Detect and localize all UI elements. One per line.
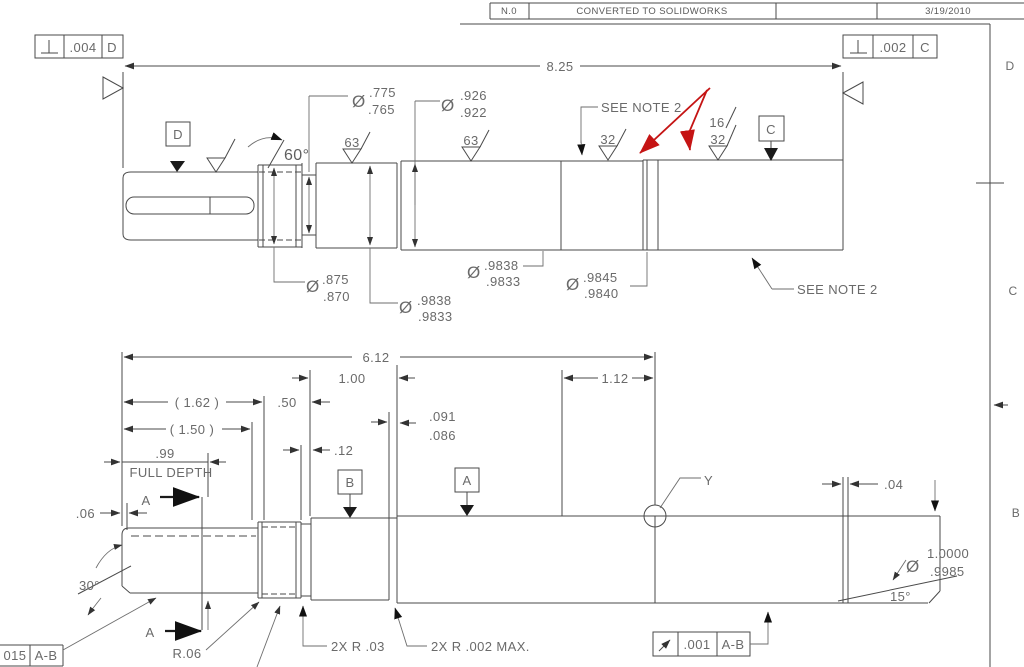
finish-32b-icon: 32 [709, 125, 736, 160]
zone-letter-c: C [1008, 284, 1017, 298]
section-line-a-a: A A [141, 493, 208, 640]
groove-lower-value: .086 [429, 428, 456, 443]
callout-dia-main: Ø 1.0000 .9985 [893, 546, 969, 580]
dim-50-value: .50 [277, 395, 296, 410]
groove-upper-value: .091 [429, 409, 456, 424]
top-view-shaft [123, 160, 843, 250]
revision-number: N.0 [501, 6, 517, 17]
callout-dia-9838-left: Ø .9838 .9833 [370, 166, 453, 324]
fcf-tolerance: .004 [70, 40, 97, 55]
datum-target-triangle-left [103, 77, 123, 99]
runout-datum: A-B [722, 637, 745, 652]
fcf-bl-datum: A-B [35, 648, 58, 663]
diameter-symbol: Ø [352, 92, 366, 111]
dim-162-value: ( 1.62 ) [175, 395, 219, 410]
dia-9838l-upper: .9838 [417, 293, 452, 308]
dia-775-upper: .775 [369, 85, 396, 100]
datum-target-triangle-right [843, 82, 863, 104]
datum-b-label: B [345, 475, 354, 490]
datum-a-label: A [462, 473, 471, 488]
engineering-drawing: N.0 CONVERTED TO SOLIDWORKS 3/19/2010 D … [0, 0, 1024, 667]
dim-99-value: .99 [155, 446, 174, 461]
fcf-perpendicularity-c: .002 C [843, 35, 937, 104]
circular-runout-icon [659, 640, 670, 651]
finish-16-icon: 16 [709, 107, 736, 130]
bottom-view-shaft [122, 516, 940, 603]
datum-triangle-icon [764, 148, 778, 161]
dia-main-lower: .9985 [930, 564, 965, 579]
dim-06-value: .06 [76, 506, 95, 521]
dia-9845-lower: .9840 [584, 286, 619, 301]
drawing-canvas: N.0 CONVERTED TO SOLIDWORKS 3/19/2010 D … [0, 0, 1024, 667]
fcf-bl-tolerance: 015 [4, 648, 27, 663]
datum-flag-d: D [166, 122, 190, 172]
dia-775-lower: .765 [368, 102, 395, 117]
radius-value: R.06 [172, 646, 201, 661]
y-target-callout: Y [644, 473, 713, 527]
datum-triangle-icon [460, 505, 474, 516]
finish-63b-value: 63 [463, 133, 478, 148]
dia-875-lower: .870 [323, 289, 350, 304]
diameter-symbol: Ø [906, 557, 920, 576]
fcf-datum: D [107, 40, 117, 55]
finish-32a-value: 32 [600, 132, 615, 147]
callout-dia-9838-right: Ø .9838 .9833 [467, 251, 543, 289]
dia-875-upper: .875 [322, 272, 349, 287]
dim-50: .50 [277, 395, 330, 410]
keyway-slot [126, 197, 254, 214]
thread-angle-value: 60° [284, 147, 309, 164]
dim-112: 1.12 [562, 370, 653, 516]
dim-100-value: 1.00 [339, 371, 366, 386]
chamfer-30-callout: 30° [78, 545, 131, 615]
dia-main-upper: 1.0000 [927, 546, 969, 561]
datum-d-label: D [173, 127, 183, 142]
angle-15-value: 15° [890, 589, 911, 604]
diameter-symbol: Ø [441, 96, 455, 115]
fcf-tolerance: .002 [880, 40, 907, 55]
fcf-bottom-left: 015 A-B [0, 598, 156, 666]
finish-16-value: 16 [709, 115, 724, 130]
dia-9845-upper: .9845 [583, 270, 618, 285]
dim-groove-091: .091 .086 [371, 365, 456, 518]
note-r03-text: 2X R .03 [331, 639, 385, 654]
dia-926-lower: .922 [460, 105, 487, 120]
full-depth-label: FULL DEPTH [130, 465, 213, 480]
datum-triangle-icon [170, 161, 185, 172]
see-note-2-upper-text: SEE NOTE 2 [601, 100, 682, 115]
diameter-symbol: Ø [399, 298, 413, 317]
finish-63a-value: 63 [344, 135, 359, 150]
datum-flag-b: B [338, 470, 362, 518]
revision-description: CONVERTED TO SOLIDWORKS [576, 6, 727, 17]
datum-triangle-icon [343, 507, 357, 518]
thread-angle-callout: 60° [248, 138, 309, 168]
dim-825-value: 8.25 [547, 59, 574, 74]
revision-strip: N.0 CONVERTED TO SOLIDWORKS 3/19/2010 [490, 3, 1024, 19]
fcf-runout: .001 A-B [653, 612, 768, 656]
dia-9838r-lower: .9833 [486, 274, 521, 289]
dim-12: .12 [283, 370, 353, 520]
y-label: Y [704, 473, 713, 488]
dim-04: .04 [822, 477, 935, 516]
section-a-bottom-label: A [145, 625, 154, 640]
dia-926-upper: .926 [460, 88, 487, 103]
zone-letter-d: D [1005, 59, 1014, 73]
see-note-2-lower: SEE NOTE 2 [752, 258, 878, 297]
see-note-2-lower-text: SEE NOTE 2 [797, 282, 878, 297]
note-2x-r03: 2X R .03 [303, 606, 385, 654]
finish-63a-icon: 63 [343, 132, 370, 163]
datum-flag-c: C [759, 116, 784, 161]
chamfer-15-callout: 15° [838, 576, 957, 604]
dim-06: .06 [76, 503, 147, 530]
red-markup-arrows [640, 88, 710, 153]
runout-tolerance: .001 [684, 637, 711, 652]
note-r002-text: 2X R .002 MAX. [431, 639, 530, 654]
finish-32b-value: 32 [710, 132, 725, 147]
dia-9838l-lower: .9833 [418, 309, 453, 324]
finish-check-icon [207, 139, 235, 172]
datum-c-label: C [766, 122, 776, 137]
diameter-symbol: Ø [467, 263, 481, 282]
angle-30-value: 30° [79, 578, 100, 593]
perpendicularity-icon [41, 40, 58, 53]
callout-dia-926: Ø .926 .922 [415, 88, 487, 247]
diameter-symbol: Ø [566, 275, 580, 294]
datum-flag-a: A [455, 468, 479, 516]
zone-letter-b: B [1012, 506, 1020, 520]
dim-150-value: ( 1.50 ) [170, 422, 214, 437]
note-2x-r002: 2X R .002 MAX. [395, 608, 530, 654]
fcf-datum: C [920, 40, 930, 55]
dia-9838r-upper: .9838 [484, 258, 519, 273]
finish-63b-icon: 63 [462, 130, 489, 161]
diameter-symbol: Ø [306, 277, 320, 296]
dim-612-value: 6.12 [363, 350, 390, 365]
dim-112-value: 1.12 [602, 371, 629, 386]
dim-04-value: .04 [884, 477, 903, 492]
callout-dia-9845: Ø .9845 .9840 [566, 252, 647, 301]
revision-date: 3/19/2010 [925, 6, 971, 17]
thread-leader [257, 606, 280, 667]
section-a-top-label: A [141, 493, 150, 508]
finish-32a-icon: 32 [599, 129, 626, 160]
callout-dia-875: Ø .875 .870 [274, 168, 350, 304]
callout-dia-775: Ø .775 .765 [309, 85, 396, 233]
dim-12-value: .12 [334, 443, 353, 458]
perpendicularity-icon [850, 40, 867, 53]
fcf-perpendicularity-d: .004 D [35, 35, 123, 99]
